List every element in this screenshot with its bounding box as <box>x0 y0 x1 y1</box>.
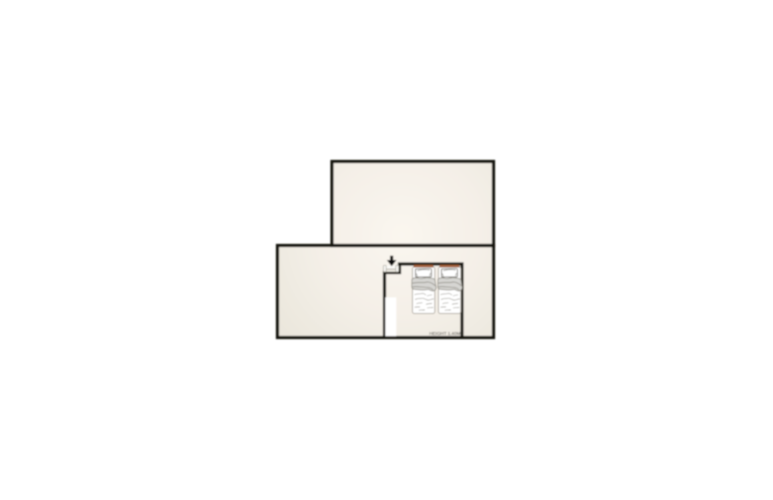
svg-text:HEIGHT 1.40M: HEIGHT 1.40M <box>429 331 460 336</box>
